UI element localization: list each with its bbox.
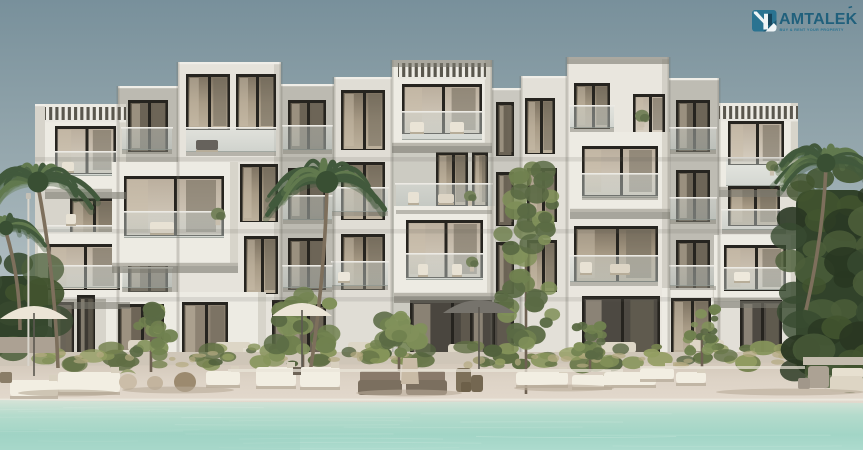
svg-text:BUY & RENT YOUR PROPERTY: BUY & RENT YOUR PROPERTY [780,28,844,32]
svg-text:AMTALEK: AMTALEK [779,11,858,28]
